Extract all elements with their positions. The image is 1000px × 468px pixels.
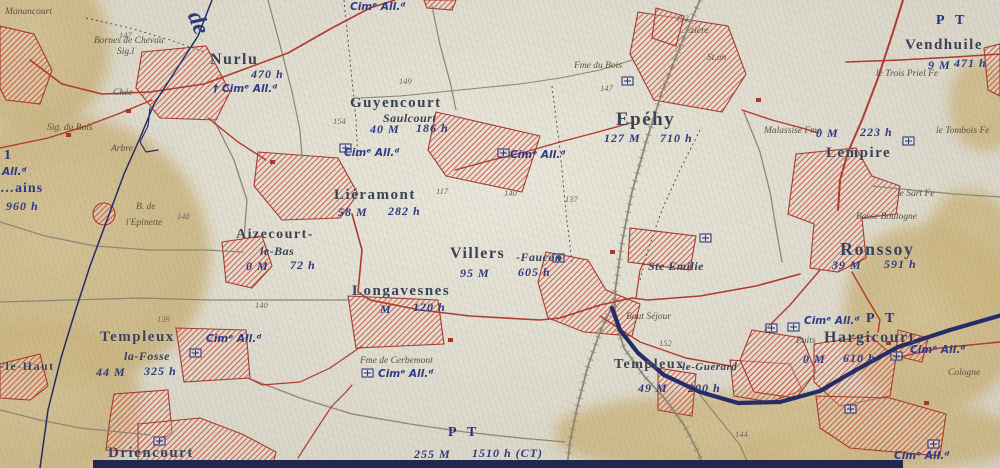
road-epehy-west bbox=[360, 60, 632, 98]
cemetery-crossbox-icon bbox=[553, 254, 564, 262]
boundary-dotted-3 bbox=[86, 18, 205, 52]
road-epehy-ronssoy bbox=[744, 112, 782, 262]
road-nurlu-west bbox=[0, 100, 152, 148]
road-vendhuile-east bbox=[846, 54, 1000, 62]
boundary-dotted-2 bbox=[552, 86, 572, 262]
village-aizecourt-le-haut bbox=[0, 354, 48, 400]
farm-building-icon bbox=[126, 109, 131, 113]
road-west-aizecourt bbox=[0, 222, 243, 252]
cemetery-crossbox-icon bbox=[154, 437, 165, 445]
boundaries-group bbox=[86, 0, 700, 280]
villages-group bbox=[0, 0, 1000, 468]
cemetery-crossbox-icon bbox=[362, 369, 373, 377]
road-west-longavesnes bbox=[0, 298, 350, 302]
map-canvas: ManancourtBornes de ChevauSig.l147ChéeSi… bbox=[0, 0, 1000, 468]
road-north-saulcourt bbox=[432, 6, 456, 110]
cemetery-crossbox-icon bbox=[845, 405, 856, 413]
village-top-edge bbox=[424, 0, 456, 10]
cemetery-crossbox-icon bbox=[340, 144, 351, 152]
cemetery-crossbox-icon bbox=[766, 324, 777, 332]
road-bottom-left bbox=[298, 385, 352, 458]
village-villers-faucon bbox=[538, 252, 640, 336]
boundary-dotted-1 bbox=[344, 0, 358, 160]
road-epehy-malassise bbox=[742, 110, 818, 133]
village-corner-nw bbox=[0, 26, 52, 104]
road-longavesnes-templeux-fosse bbox=[248, 346, 362, 385]
cemetery-crossbox-icon bbox=[891, 352, 902, 360]
farm-building-icon bbox=[66, 133, 71, 137]
road-north-guyencourt bbox=[268, 0, 302, 158]
village-longavesnes bbox=[348, 296, 444, 348]
village-vendhuile-edge bbox=[984, 44, 1000, 96]
road-templeux-roisel bbox=[248, 378, 565, 442]
farm-building-icon bbox=[756, 98, 761, 102]
farm-building-icon bbox=[448, 338, 453, 342]
cemetery-crossbox-icon bbox=[903, 137, 914, 145]
cemetery-crossbox-icon bbox=[498, 149, 509, 157]
village-ste-emilie bbox=[628, 228, 696, 270]
road-hargicourt-south bbox=[700, 395, 750, 468]
farm-building-icon bbox=[924, 401, 929, 405]
cemetery-crossbox-icon bbox=[622, 77, 633, 85]
village-lieramont bbox=[254, 152, 358, 220]
road-nurlu-aizecourt bbox=[214, 120, 247, 238]
village-aizecourt-le-bas bbox=[222, 236, 272, 288]
cemetery-crossbox-icon bbox=[928, 440, 939, 448]
farm-building-icon bbox=[270, 160, 275, 164]
road-ste-emilie-spur bbox=[636, 262, 644, 298]
village-templeux-la-fosse bbox=[176, 328, 250, 382]
map-linework bbox=[0, 0, 1000, 468]
cemetery-crossbox-icon bbox=[700, 234, 711, 242]
farm-building-icon bbox=[610, 250, 615, 254]
scan-edge-bar bbox=[93, 460, 903, 468]
farm-building-icon bbox=[886, 341, 891, 345]
road-ronssoy-templeux bbox=[765, 270, 820, 330]
road-ronssoy-hargicourt bbox=[852, 272, 880, 332]
cemetery-crossbox-icon bbox=[788, 323, 799, 331]
road-nurlu-lieramont bbox=[208, 118, 266, 160]
cemetery-crossbox-icon bbox=[190, 349, 201, 357]
